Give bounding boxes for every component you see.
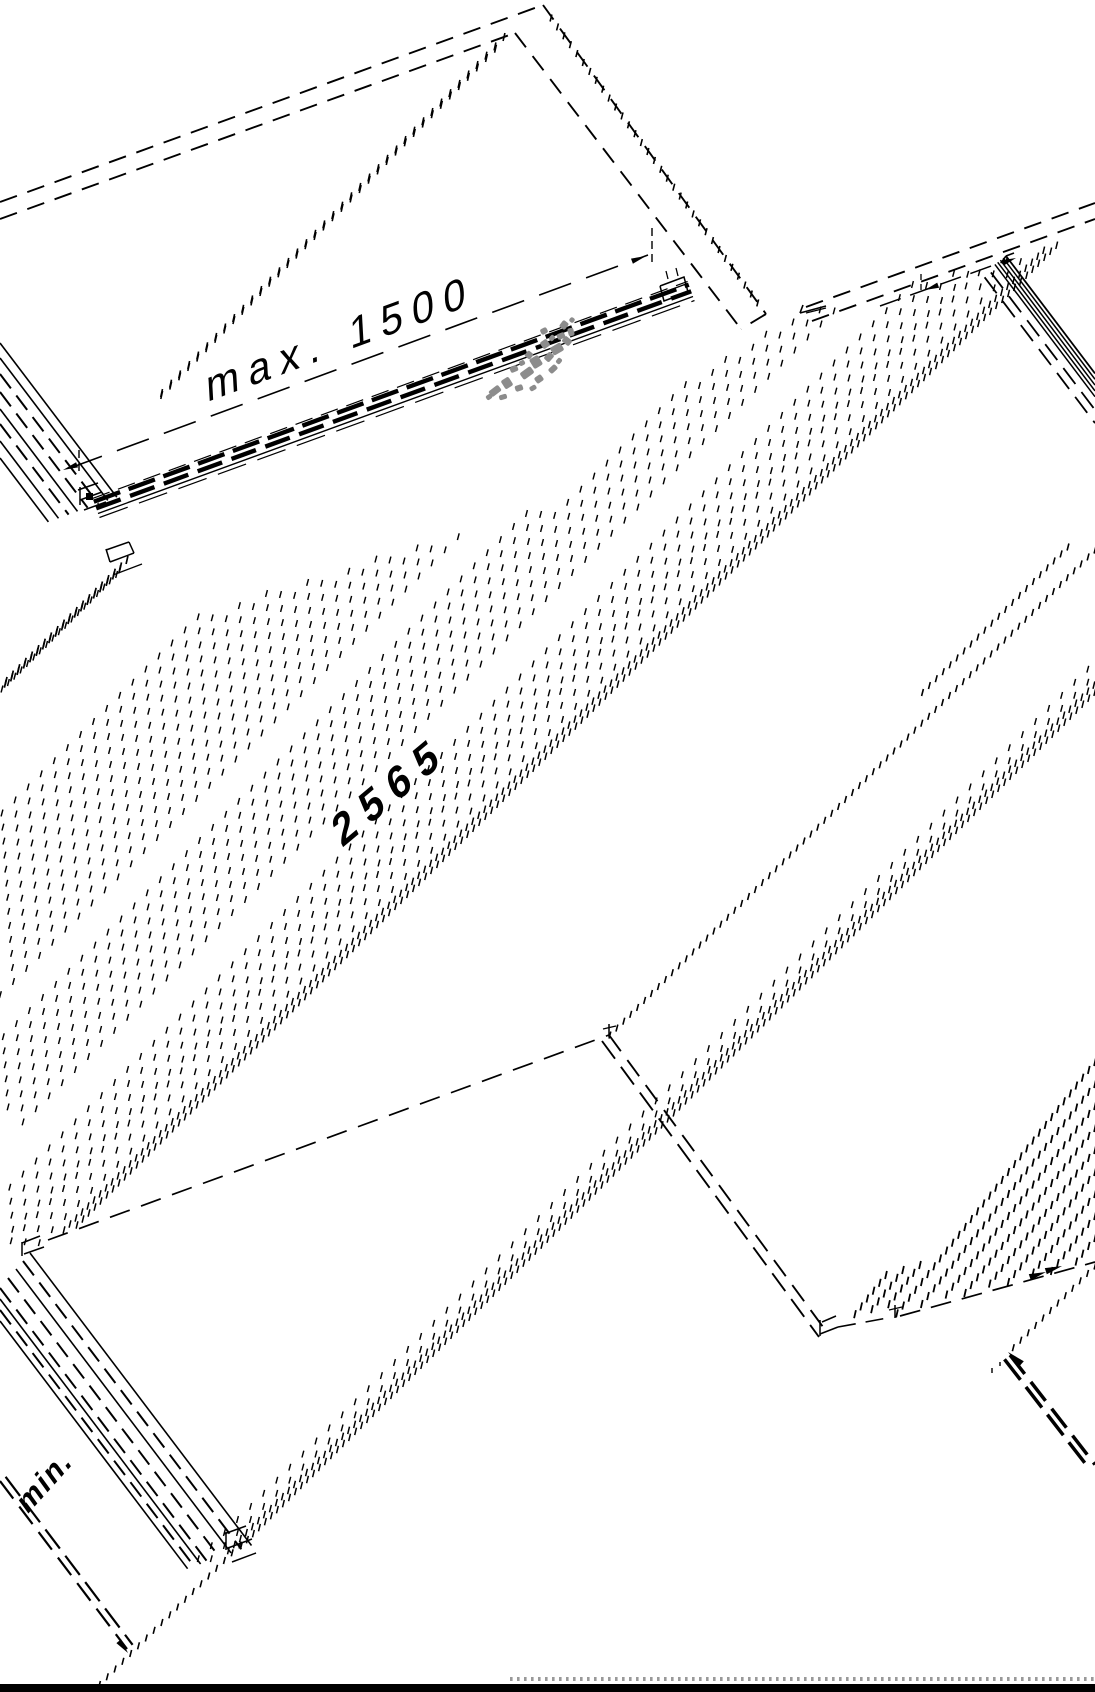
svg-text:2565: 2565 — [325, 722, 455, 857]
svg-text:min.: min. — [12, 1442, 78, 1521]
